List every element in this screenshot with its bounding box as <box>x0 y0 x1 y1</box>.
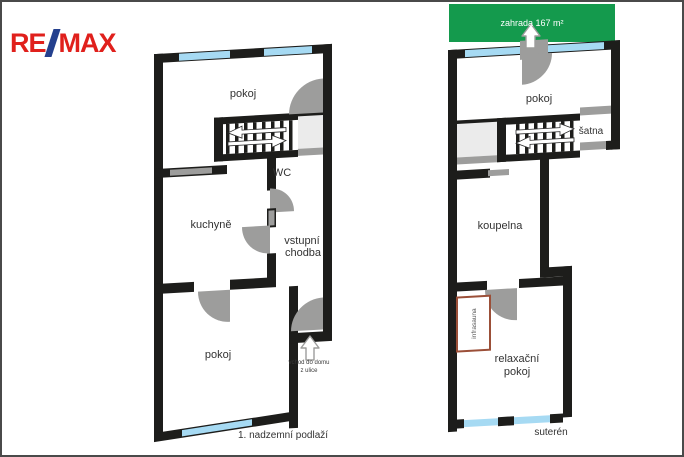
wall <box>606 140 620 150</box>
room-label-vstupni: vstupní <box>284 235 319 247</box>
landing-corridor <box>457 121 497 157</box>
window <box>464 418 498 427</box>
window <box>514 415 550 424</box>
wall <box>497 113 580 125</box>
wall-opening <box>488 169 509 176</box>
wall <box>230 277 276 290</box>
room-label-pokoj-basement: pokoj <box>526 93 552 105</box>
wall-opening <box>269 210 275 225</box>
room-label-koupelna: koupelna <box>478 220 524 232</box>
wall <box>457 281 487 292</box>
stair-step <box>516 124 520 154</box>
room-label-pokoj-top: pokoj <box>230 88 256 100</box>
room-label-chodba: chodba <box>285 247 322 259</box>
stair-step <box>552 122 556 152</box>
stair-step <box>226 124 230 154</box>
floor1-caption: 1. nadzemní podlaží <box>238 430 328 441</box>
wall <box>289 286 298 429</box>
wall <box>448 50 457 433</box>
stair-step <box>262 122 266 152</box>
stair-step <box>570 121 574 151</box>
wall <box>611 40 620 150</box>
wall <box>550 413 563 423</box>
wall <box>267 253 276 280</box>
entrance-label-line1: vchod do domu <box>288 360 329 366</box>
wall <box>519 276 563 288</box>
entrance-label-line2: z ulice <box>300 368 318 374</box>
staircase <box>214 113 298 162</box>
wall <box>563 266 572 418</box>
room-label-wc: WC <box>273 167 291 179</box>
stair-step <box>244 123 248 153</box>
room-label-kuchyne: kuchyně <box>191 219 232 231</box>
floorplan-page: RE MAX <box>0 0 684 457</box>
door-arc <box>198 290 230 324</box>
stair-step <box>253 122 257 152</box>
wall <box>154 54 163 440</box>
room-label-pokoj-bottom: pokoj <box>205 349 231 361</box>
room-label-satna: šatna <box>579 126 604 137</box>
stair-step <box>534 123 538 153</box>
wall <box>497 150 580 162</box>
garden-label: zahrada 167 m² <box>500 18 563 28</box>
stair-step <box>543 122 547 152</box>
wall <box>448 419 464 429</box>
basement-caption: suterén <box>534 427 567 438</box>
wall <box>540 154 549 274</box>
infrasauna-label: infrasauna <box>471 308 478 339</box>
staircase <box>497 113 580 162</box>
room-label-relaxacni: relaxační <box>495 353 540 365</box>
wall-opening <box>580 141 606 150</box>
stair-step <box>280 121 284 151</box>
door-arc <box>242 225 270 255</box>
wall <box>498 416 514 426</box>
stair-step <box>289 120 293 150</box>
wall-opening <box>580 106 611 116</box>
door-arc <box>522 53 552 85</box>
floorplan-canvas: zahrada 167 m² pokoj WC kuchyně vstupní … <box>2 2 684 457</box>
window <box>179 51 230 61</box>
room-label-relax-pokoj: pokoj <box>504 366 530 378</box>
wall-opening <box>298 147 323 155</box>
door-arc <box>289 78 323 114</box>
landing-corridor <box>298 114 323 149</box>
wall <box>323 44 332 338</box>
